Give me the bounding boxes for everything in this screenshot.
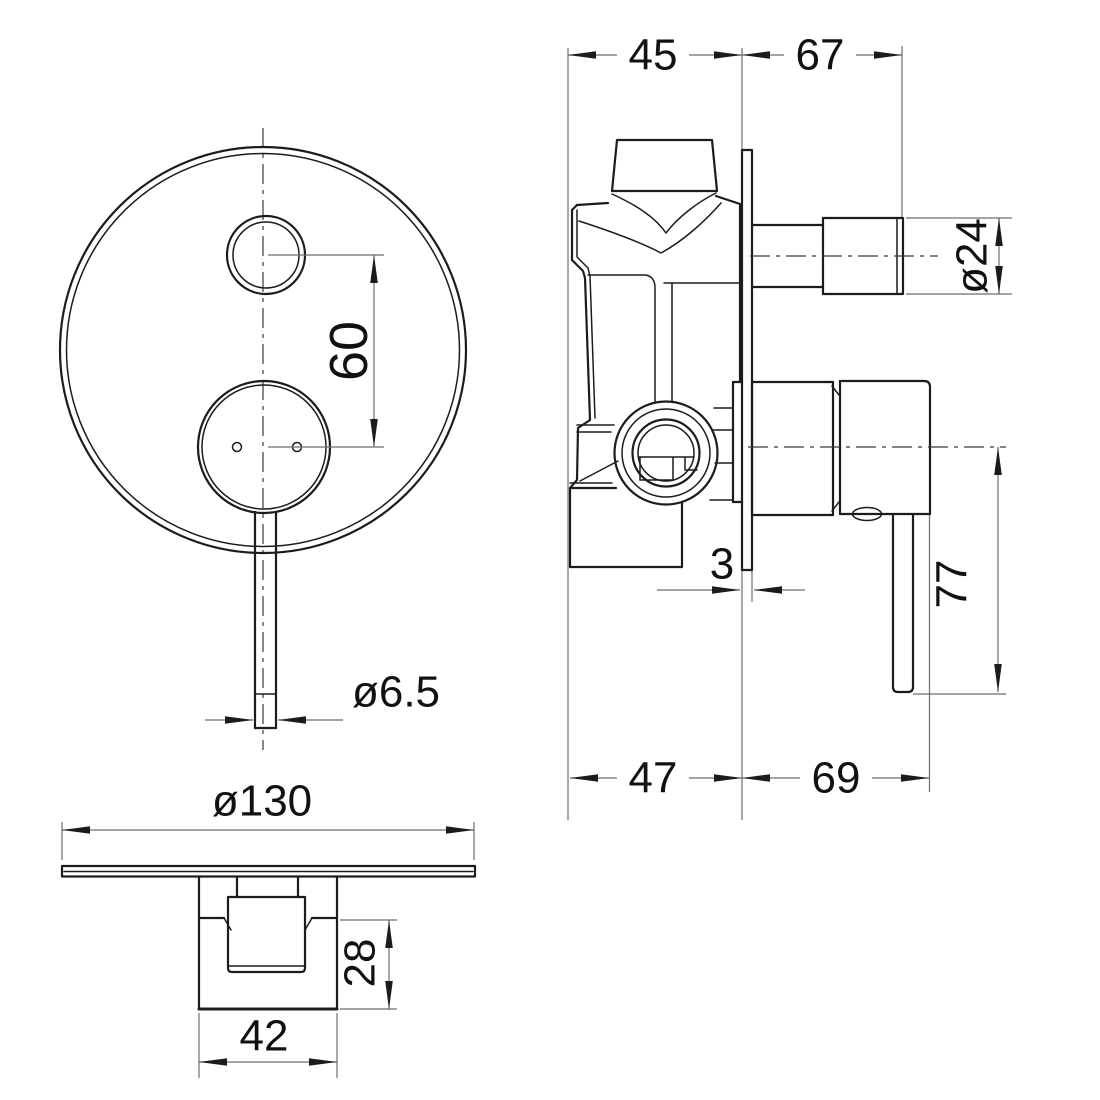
dim-label-projection-bottom: 69 bbox=[812, 754, 861, 803]
top-inlet-port bbox=[612, 140, 717, 191]
cartridge-bore-inner bbox=[638, 425, 694, 481]
dim-label-spacing-60: 60 bbox=[319, 321, 379, 381]
body-top-left-edge bbox=[577, 203, 608, 205]
cartridge-ring-outer bbox=[615, 402, 718, 505]
cartridge-sleeve bbox=[733, 382, 742, 502]
cartridge-ring-mid bbox=[622, 409, 710, 497]
lever-side-profile bbox=[893, 515, 913, 692]
technical-drawing-page: 60 ø6.5 bbox=[0, 0, 1100, 1100]
bottom-view: ø130 28 42 bbox=[62, 777, 475, 1079]
dim-label-handle-height: 28 bbox=[336, 939, 385, 988]
dim-label-pipe-diameter: ø24 bbox=[948, 218, 997, 294]
channel-left-wall bbox=[588, 275, 655, 402]
dim-label-lever-length: 77 bbox=[928, 560, 977, 609]
dim-label-projection-top: 67 bbox=[796, 31, 845, 80]
side-view: 45 67 ø24 3 77 47 69 bbox=[568, 31, 1012, 821]
wall-plate-side bbox=[742, 150, 752, 570]
hub-pin-left bbox=[233, 443, 242, 452]
dim-label-rough-in-bottom: 47 bbox=[629, 754, 678, 803]
cartridge-bore-outer bbox=[633, 420, 700, 487]
dim-label-plate-thickness: 3 bbox=[710, 540, 734, 589]
body-top-right-edge bbox=[716, 196, 740, 204]
mixer-valve-drawing: 60 ø6.5 bbox=[0, 0, 1100, 1100]
handle-block-section bbox=[228, 897, 305, 972]
dim-label-handle-width: 42 bbox=[240, 1012, 289, 1061]
front-view: 60 ø6.5 bbox=[60, 128, 466, 750]
handle-escutcheon bbox=[752, 382, 833, 515]
dim-label-plate-diameter: ø130 bbox=[212, 777, 312, 826]
dim-label-lever-diameter: ø6.5 bbox=[352, 668, 440, 717]
inlet-saddle-curve-1 bbox=[612, 193, 716, 233]
dim-label-rough-in-top: 45 bbox=[629, 31, 678, 80]
cartridge-sleeve-lines bbox=[710, 408, 733, 500]
body-diagonal-rib bbox=[580, 461, 618, 481]
channel-right-wall bbox=[664, 283, 672, 402]
inlet-saddle-curve-2 bbox=[579, 203, 721, 253]
body-left-profile bbox=[570, 205, 682, 567]
